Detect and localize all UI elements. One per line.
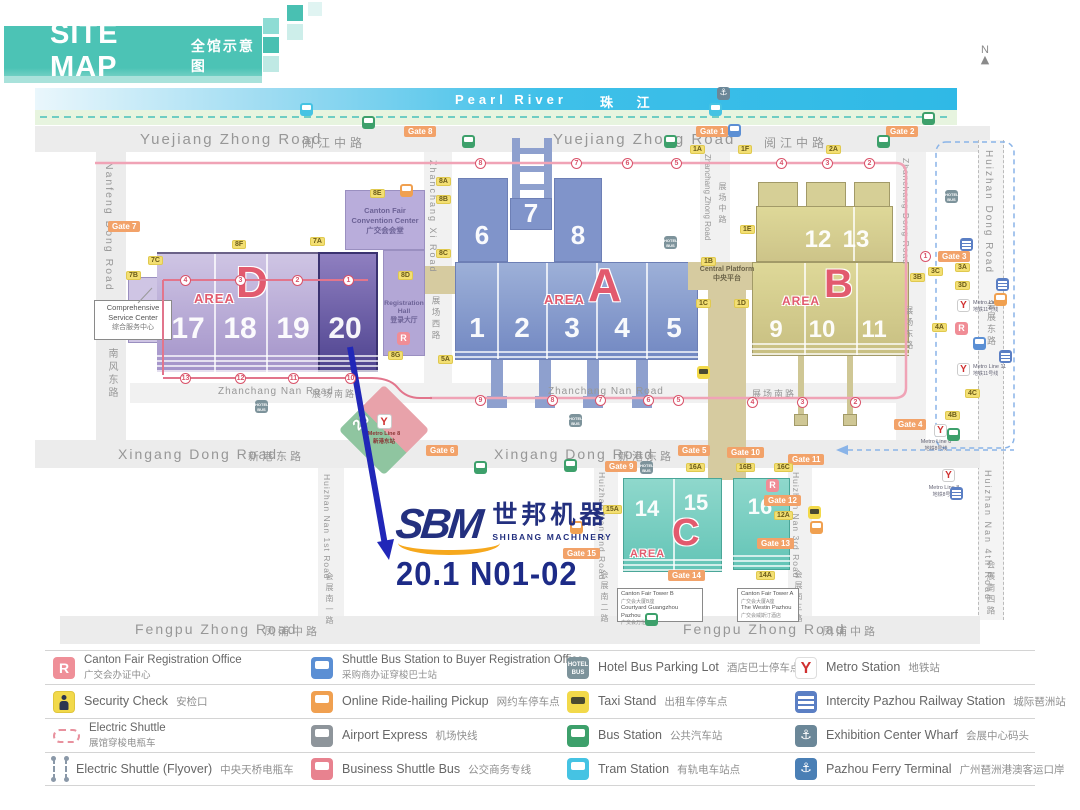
hall-divider bbox=[646, 263, 648, 359]
gate-label: Gate 7 bbox=[108, 221, 140, 232]
road-label: 会展南四路 bbox=[985, 560, 997, 616]
hotel-tower-a-box: Canton Fair Tower A 广交会大厦A座 The Westin P… bbox=[737, 588, 799, 622]
shuttle-stop: 1 bbox=[343, 275, 354, 286]
legend-text: Pazhou Ferry Terminal 广州琶洲港澳客运口岸 bbox=[826, 762, 1035, 777]
north-compass: N ▲ bbox=[975, 44, 995, 64]
road-label: 阅江中路 bbox=[764, 134, 828, 151]
deco-square bbox=[287, 24, 303, 40]
gate-chip: 1E bbox=[740, 225, 755, 234]
legend-label-en: Business Shuttle Bus bbox=[342, 762, 460, 776]
gate-chip: 3A bbox=[955, 263, 970, 272]
legend-item: Business Shuttle Bus 公交商务专线 bbox=[303, 752, 559, 786]
gate-label: Gate 9 bbox=[605, 461, 637, 472]
gate-chip: 4C bbox=[965, 389, 980, 398]
bridge-rung bbox=[520, 166, 544, 172]
hall-number: 11 bbox=[856, 316, 892, 344]
service-line2: Service Center bbox=[95, 313, 171, 323]
electric-shuttle-flyover-icon bbox=[53, 758, 67, 780]
gate-chip: 8A bbox=[436, 177, 451, 186]
legend-label-en: Electric Shuttle (Flyover) bbox=[76, 762, 212, 776]
shuttle-stop: 5 bbox=[671, 158, 682, 169]
gate-chip: 4B bbox=[945, 411, 960, 420]
bus-station-icon bbox=[922, 112, 935, 125]
booth-number: 20.1 N01-02 bbox=[396, 555, 612, 594]
wharf-icon bbox=[717, 87, 730, 100]
service-center-box: Comprehensive Service Center 综合服务中心 bbox=[94, 300, 172, 340]
tram-line-band bbox=[35, 110, 957, 125]
convention-line2: Convention Center bbox=[346, 216, 424, 226]
sitemap-banner: SITE MAP 全馆示意图 bbox=[4, 26, 262, 76]
area-c-word: AREA bbox=[630, 548, 665, 560]
legend-text: Electric Shuttle (Flyover) 中央天桥电瓶车 bbox=[76, 762, 294, 777]
bus-station-icon bbox=[362, 116, 375, 129]
road-label: Yuejiang Zhong Road bbox=[140, 131, 322, 148]
tram-station-icon bbox=[300, 103, 313, 116]
legend-label-en: Tram Station bbox=[598, 762, 669, 776]
legend-label-zh: 公交商务专线 bbox=[468, 762, 531, 777]
shuttle-stop: 7 bbox=[595, 395, 606, 406]
legend-label-zh: 广州琶洲港澳客运口岸 bbox=[960, 762, 1065, 777]
gate-chip: 3B bbox=[910, 273, 925, 282]
legend-label-zh: 有轨电车站点 bbox=[677, 762, 740, 777]
area-a-stripes bbox=[455, 348, 698, 360]
hall-number: 1 bbox=[457, 312, 497, 344]
hall-number: 4 bbox=[602, 312, 642, 344]
road-label: Huizhan Dong Road bbox=[983, 150, 994, 290]
river-label-en: Pearl River bbox=[455, 92, 567, 107]
bus-station-icon bbox=[877, 135, 890, 148]
hall-number: 3 bbox=[552, 312, 592, 344]
hotel-bus-icon bbox=[567, 657, 589, 679]
hotel-tower-b-box: Canton Fair Tower B 广交会大厦B座 Courtyard Gu… bbox=[617, 588, 703, 622]
legend-text: Taxi Stand 出租车停车点 bbox=[598, 694, 727, 709]
hall-number: 14 bbox=[629, 496, 665, 522]
hall-divider bbox=[497, 263, 499, 359]
legend-item: Security Check 安检口 bbox=[45, 684, 303, 718]
hall-number: 13 bbox=[838, 226, 874, 254]
shuttle-stop: 5 bbox=[673, 395, 684, 406]
sbm-logo-text: SBM bbox=[394, 503, 483, 545]
gate-chip: 1A bbox=[690, 145, 705, 154]
hall-number: 5 bbox=[654, 312, 694, 344]
page-subtitle: 全馆示意图 bbox=[191, 36, 262, 76]
tram-station-icon bbox=[567, 758, 589, 780]
gate-label: Gate 8 bbox=[404, 126, 436, 137]
legend-label-zh: 采购商办证穿梭巴士站 bbox=[342, 667, 437, 681]
legend-label-en: Shuttle Bus Station to Buyer Registratio… bbox=[342, 654, 583, 666]
platform-line2: 中央平台 bbox=[688, 274, 766, 283]
road-label: Zhanchang Zhong Road bbox=[703, 154, 712, 264]
legend-item: Exhibition Center Wharf 会展中心码头 bbox=[787, 718, 1035, 752]
gate-chip: 14A bbox=[756, 571, 775, 580]
metro-line-text: Metro Line 8 bbox=[368, 431, 400, 438]
area-b-tab bbox=[854, 182, 890, 208]
road-label: Huizhan Nan 1st Road bbox=[322, 474, 332, 574]
gate-chip: 1B bbox=[701, 257, 716, 266]
company-name: 世邦机器 SHIBANG MACHINERY bbox=[492, 503, 612, 542]
shuttle-stop: 8 bbox=[475, 158, 486, 169]
gate-chip: 8F bbox=[232, 240, 246, 249]
gate-label: Gate 1 bbox=[696, 126, 728, 137]
ride-hailing-icon bbox=[994, 293, 1007, 306]
booth-arrow-head bbox=[377, 539, 394, 560]
site-map-page: SITE MAP 全馆示意图 N ▲ Pearl River 珠 江 Yueji… bbox=[0, 0, 1080, 810]
page-title: SITE MAP bbox=[50, 18, 179, 84]
convention-center-label: Canton Fair Convention Center 广交会会堂 bbox=[346, 206, 424, 235]
area-d-stripes bbox=[157, 352, 378, 372]
metro-line-text-zh: 地铁11号线 bbox=[973, 371, 1006, 377]
booth-logo-row: SBM 世邦机器 SHIBANG MACHINERY bbox=[396, 503, 612, 545]
legend-label-en: Taxi Stand bbox=[598, 694, 656, 708]
metro-line-text-zh: 地铁8号线 bbox=[912, 446, 960, 452]
metro-station-icon bbox=[957, 363, 970, 376]
hotel-a-line1: Canton Fair Tower A bbox=[741, 591, 795, 599]
shuttle-stop: 6 bbox=[643, 395, 654, 406]
legend-label-en: Security Check bbox=[84, 694, 168, 708]
area-b-stub-base bbox=[794, 414, 808, 426]
bridge-rung bbox=[520, 184, 544, 190]
legend-item: Taxi Stand 出租车停车点 bbox=[559, 684, 787, 718]
deco-square bbox=[263, 56, 279, 72]
legend-item: Intercity Pazhou Railway Station 城际琶洲站 bbox=[787, 684, 1035, 718]
legend-label-zh: 出租车停车点 bbox=[664, 694, 727, 709]
hotel-bus-icon bbox=[255, 400, 268, 413]
sbm-logo: SBM bbox=[396, 503, 480, 545]
legend-label-zh: 中央天桥电瓶车 bbox=[220, 762, 294, 777]
road-label: 南风东路 bbox=[104, 348, 119, 418]
gate-label: Gate 14 bbox=[668, 570, 705, 581]
legend-label-zh: 城际琶洲站 bbox=[1013, 694, 1066, 709]
hotel-bus-icon bbox=[945, 190, 958, 203]
road-label: 展场西路 bbox=[430, 296, 442, 348]
convention-line1: Canton Fair bbox=[346, 206, 424, 216]
legend-text: Electric Shuttle 展馆穿梭电瓶车 bbox=[89, 722, 166, 749]
gate-label: Gate 4 bbox=[894, 419, 926, 430]
gate-chip: 4A bbox=[932, 323, 947, 332]
hall-number: 19 bbox=[273, 312, 313, 346]
wharf-icon bbox=[795, 725, 817, 747]
bus-station-icon bbox=[474, 461, 487, 474]
taxi-stand-icon bbox=[697, 366, 710, 379]
hall-7-bridge bbox=[512, 138, 552, 200]
taxi-stand-icon bbox=[808, 506, 821, 519]
legend-label-zh: 展馆穿梭电瓶车 bbox=[89, 735, 156, 749]
legend-item: Electric Shuttle 展馆穿梭电瓶车 bbox=[45, 718, 303, 752]
gate-label: Gate 13 bbox=[757, 538, 794, 549]
road-label: 凤浦中路 bbox=[264, 623, 320, 639]
legend-label-en: Pazhou Ferry Terminal bbox=[826, 762, 952, 776]
area-b-stub-base bbox=[843, 414, 857, 426]
area-b-tab bbox=[806, 182, 846, 208]
ferry-terminal-icon bbox=[795, 758, 817, 780]
deco-square bbox=[287, 5, 303, 21]
shuttle-stop: 6 bbox=[622, 158, 633, 169]
north-arrow-icon: ▲ bbox=[975, 56, 995, 64]
shuttle-stop: 2 bbox=[292, 275, 303, 286]
gate-label: Gate 5 bbox=[678, 445, 710, 456]
bus-station-icon bbox=[664, 135, 677, 148]
gate-chip: 7B bbox=[126, 271, 141, 280]
metro-station-icon bbox=[942, 469, 955, 482]
gate-label: Gate 3 bbox=[938, 251, 970, 262]
gate-chip: 5A bbox=[438, 355, 453, 364]
airport-express-icon bbox=[311, 725, 333, 747]
bus-station-icon bbox=[645, 613, 658, 626]
gate-chip: 8E bbox=[370, 189, 385, 198]
business-shuttle-icon bbox=[311, 758, 333, 780]
shuttle-stop: 2 bbox=[850, 397, 861, 408]
road-label: 凤浦中路 bbox=[822, 623, 878, 639]
shuttle-stop: 4 bbox=[776, 158, 787, 169]
legend-label-en: Canton Fair Registration Office bbox=[84, 654, 242, 666]
deco-square bbox=[263, 18, 279, 34]
legend-label-zh: 会展中心码头 bbox=[966, 728, 1029, 743]
shuttle-stop: 3 bbox=[822, 158, 833, 169]
shuttle-stop: 8 bbox=[547, 395, 558, 406]
banner-underline bbox=[4, 76, 262, 83]
road-label: 会展南一路 bbox=[324, 572, 335, 618]
legend-label-zh: 广交会办证中心 bbox=[84, 667, 151, 681]
hall-number: 10 bbox=[804, 316, 840, 344]
registration-line1: Registration Hall bbox=[383, 300, 425, 317]
hall-divider bbox=[546, 263, 548, 359]
area-b-word: AREA bbox=[782, 294, 820, 308]
metro-line8-label: Metro Line 8 新港东站 bbox=[368, 431, 400, 445]
hall-number: 15 bbox=[678, 490, 714, 516]
pillar-base bbox=[487, 396, 507, 408]
area-a-word: AREA bbox=[544, 292, 585, 307]
gate-chip: 12A bbox=[774, 511, 793, 520]
gate-chip: 16A bbox=[686, 463, 705, 472]
hall-number: 17 bbox=[168, 312, 208, 346]
road-label: 新港东路 bbox=[248, 448, 304, 464]
gate-chip: 3D bbox=[955, 281, 970, 290]
hotel-a-line4: 广交会威斯汀酒店 bbox=[741, 613, 795, 620]
shuttle-stop: 3 bbox=[235, 275, 246, 286]
legend-item: Canton Fair Registration Office 广交会办证中心 bbox=[45, 650, 303, 684]
legend-text: Canton Fair Registration Office 广交会办证中心 bbox=[84, 654, 242, 681]
shuttle-bus-icon bbox=[728, 124, 741, 137]
shuttle-stop: 4 bbox=[180, 275, 191, 286]
metro-station-icon bbox=[795, 657, 817, 679]
legend-item: Pazhou Ferry Terminal 广州琶洲港澳客运口岸 bbox=[787, 752, 1035, 786]
legend-item: Electric Shuttle (Flyover) 中央天桥电瓶车 bbox=[45, 752, 303, 786]
hall-number: 2 bbox=[502, 312, 542, 344]
tram-station-icon bbox=[709, 103, 722, 116]
legend-text: Online Ride-hailing Pickup 网约车停车点 bbox=[342, 694, 559, 709]
ride-hailing-icon bbox=[810, 521, 823, 534]
registration-office-icon bbox=[766, 479, 779, 492]
area-c-letter: C bbox=[672, 512, 700, 555]
legend-text: Bus Station 公共汽车站 bbox=[598, 728, 722, 743]
gate-chip: 16C bbox=[774, 463, 793, 472]
legend-item: Metro Station 地铁站 bbox=[787, 650, 1035, 684]
registration-office-icon bbox=[955, 322, 968, 335]
hall-number: 18 bbox=[220, 312, 260, 346]
road-label: 展场南路 bbox=[752, 387, 796, 400]
metro-diamond-xingangdong: 20 Y Metro Line 8 新港东站 bbox=[339, 385, 430, 476]
shuttle-stop: 1 bbox=[920, 251, 931, 262]
shuttle-stop: 10 bbox=[345, 373, 356, 384]
hall-number: 6 bbox=[462, 220, 502, 251]
legend-label-en: Airport Express bbox=[342, 728, 427, 742]
bus-station-icon bbox=[462, 135, 475, 148]
gate-chip: 7A bbox=[310, 237, 325, 246]
shuttle-bus-icon bbox=[311, 657, 333, 679]
company-name-zh: 世邦机器 bbox=[492, 503, 612, 528]
bus-station-icon bbox=[567, 725, 589, 747]
legend-text: Shuttle Bus Station to Buyer Registratio… bbox=[342, 654, 559, 681]
security-check-icon bbox=[53, 691, 75, 713]
area-b-tab bbox=[758, 182, 798, 208]
metro-line-text-zh: 地铁11号线 bbox=[973, 307, 1006, 313]
gate-label: Gate 12 bbox=[764, 495, 801, 506]
deco-square bbox=[308, 2, 322, 16]
hotel-b-line3: Courtyard Guangzhou Pazhou bbox=[621, 605, 699, 620]
bus-station-icon bbox=[947, 428, 960, 441]
shuttle-stop: 9 bbox=[475, 395, 486, 406]
diamond-inner: Y Metro Line 8 新港东站 bbox=[352, 398, 416, 462]
gate-chip: 1D bbox=[734, 299, 749, 308]
area-b-letter: B bbox=[824, 262, 854, 307]
shuttle-bus-icon bbox=[973, 337, 986, 350]
gate-chip: 2A bbox=[826, 145, 841, 154]
gate-chip: 8D bbox=[398, 271, 413, 280]
metro-station-icon: Y bbox=[377, 414, 392, 429]
registration-hall-label: Registration Hall 登录大厅 bbox=[383, 300, 425, 325]
legend-text: Airport Express 机场快线 bbox=[342, 728, 477, 743]
intercity-rail-icon bbox=[950, 487, 963, 500]
shuttle-stop: 7 bbox=[571, 158, 582, 169]
legend-item: Hotel Bus Parking Lot 酒店巴士停车点 bbox=[559, 650, 787, 684]
legend-label-en: Bus Station bbox=[598, 728, 662, 742]
road-label: 阅江中路 bbox=[302, 134, 366, 151]
bridge-rung bbox=[520, 148, 544, 154]
legend-label-en: Electric Shuttle bbox=[89, 722, 166, 734]
hall-number: 12 bbox=[800, 226, 836, 254]
bus-station-icon bbox=[564, 459, 577, 472]
service-line3: 综合服务中心 bbox=[95, 323, 171, 332]
ride-hailing-icon bbox=[311, 691, 333, 713]
gate-chip: 7C bbox=[148, 256, 163, 265]
sbm-logo-swoosh bbox=[398, 543, 500, 555]
legend-text: Metro Station 地铁站 bbox=[826, 660, 940, 675]
convention-line3: 广交会会堂 bbox=[346, 226, 424, 236]
gate-chip: 16B bbox=[736, 463, 755, 472]
river-label-zh: 珠 江 bbox=[600, 92, 660, 111]
legend-text: Hotel Bus Parking Lot 酒店巴士停车点 bbox=[598, 660, 787, 675]
electric-shuttle-icon bbox=[53, 729, 80, 743]
legend-item: Bus Station 公共汽车站 bbox=[559, 718, 787, 752]
intercity-rail-icon bbox=[999, 350, 1012, 363]
legend-label-zh: 地铁站 bbox=[908, 660, 940, 675]
legend-label-zh: 网约车停车点 bbox=[497, 694, 560, 709]
registration-line2: 登录大厅 bbox=[383, 317, 425, 325]
pillar bbox=[491, 360, 503, 398]
legend: Canton Fair Registration Office 广交会办证中心 … bbox=[45, 650, 1035, 786]
legend-text: Business Shuttle Bus 公交商务专线 bbox=[342, 762, 531, 777]
legend-text: Tram Station 有轨电车站点 bbox=[598, 762, 740, 777]
area-d-word: AREA bbox=[194, 291, 235, 306]
metro-station-icon bbox=[957, 299, 970, 312]
hotel-bus-icon bbox=[569, 414, 582, 427]
gate-chip: 3C bbox=[928, 267, 943, 276]
metro-line11-label: Metro Line 11 地铁11号线 bbox=[973, 364, 1006, 377]
gate-chip: 8B bbox=[436, 195, 451, 204]
company-name-en: SHIBANG MACHINERY bbox=[492, 532, 612, 542]
shuttle-stop: 2 bbox=[864, 158, 875, 169]
hotel-a-line3: The Westin Pazhou bbox=[741, 605, 795, 613]
hotel-bus-icon bbox=[664, 236, 677, 249]
legend-label-zh: 安检口 bbox=[176, 694, 208, 709]
hall-number: 8 bbox=[558, 220, 598, 251]
metro-line-text: Metro Line 11 bbox=[973, 364, 1006, 371]
legend-label-en: Online Ride-hailing Pickup bbox=[342, 694, 489, 708]
hotel-b-line4: 广交会万怡酒店 bbox=[621, 620, 699, 627]
hotel-b-line1: Canton Fair Tower B bbox=[621, 591, 699, 599]
metro-station-icon bbox=[934, 424, 947, 437]
gate-chip: 1C bbox=[696, 299, 711, 308]
intercity-rail-icon bbox=[996, 278, 1009, 291]
road-label: Zhanchang Dong Road bbox=[901, 158, 911, 278]
registration-office-icon bbox=[53, 657, 75, 679]
hall-number: 7 bbox=[511, 198, 551, 229]
area-a-block bbox=[455, 262, 698, 360]
legend-label-en: Exhibition Center Wharf bbox=[826, 728, 958, 742]
central-platform-label: Central Platform 中央平台 bbox=[688, 265, 766, 283]
shuttle-stop: 11 bbox=[288, 373, 299, 384]
legend-label-en: Hotel Bus Parking Lot bbox=[598, 660, 719, 674]
legend-text: Security Check 安检口 bbox=[84, 694, 208, 709]
legend-text: Exhibition Center Wharf 会展中心码头 bbox=[826, 728, 1029, 743]
deco-square bbox=[263, 37, 279, 53]
area-c-stripes bbox=[733, 552, 790, 568]
intercity-rail-icon bbox=[795, 691, 817, 713]
hall-number: 9 bbox=[758, 316, 794, 344]
gate-label: Gate 6 bbox=[426, 445, 458, 456]
shuttle-stop: 13 bbox=[180, 373, 191, 384]
area-a-letter: A bbox=[588, 258, 622, 312]
road-label: 展场中路 bbox=[717, 182, 728, 238]
legend-item: Tram Station 有轨电车站点 bbox=[559, 752, 787, 786]
gate-label: Gate 10 bbox=[727, 447, 764, 458]
legend-label-en: Intercity Pazhou Railway Station bbox=[826, 694, 1005, 708]
gate-chip: 8G bbox=[388, 351, 403, 360]
ride-hailing-icon bbox=[400, 184, 413, 197]
legend-label-zh: 机场快线 bbox=[435, 728, 477, 743]
service-line1: Comprehensive bbox=[95, 303, 171, 313]
shuttle-stop: 3 bbox=[797, 397, 808, 408]
booth-callout: SBM 世邦机器 SHIBANG MACHINERY 20.1 N01-02 bbox=[396, 503, 612, 591]
hall-number: 20 bbox=[325, 312, 365, 346]
intercity-rail-icon bbox=[960, 238, 973, 251]
legend-item: Online Ride-hailing Pickup 网约车停车点 bbox=[303, 684, 559, 718]
shuttle-stop: 12 bbox=[235, 373, 246, 384]
road-label: 展场南路 bbox=[312, 387, 356, 400]
shuttle-stop: 4 bbox=[747, 397, 758, 408]
legend-item: Airport Express 机场快线 bbox=[303, 718, 559, 752]
gate-label: Gate 2 bbox=[886, 126, 918, 137]
metro-station-text: 新港东站 bbox=[368, 439, 400, 446]
gate-chip: 8C bbox=[436, 249, 451, 258]
pearl-river: Pearl River 珠 江 bbox=[35, 88, 957, 110]
road-label: Huizhan Nan 3rd Road bbox=[791, 472, 801, 572]
legend-text: Intercity Pazhou Railway Station 城际琶洲站 bbox=[826, 694, 1035, 709]
gate-chip: 1F bbox=[738, 145, 752, 154]
hotel-bus-icon bbox=[640, 461, 653, 474]
taxi-stand-icon bbox=[567, 691, 589, 713]
legend-label-zh: 公共汽车站 bbox=[670, 728, 723, 743]
